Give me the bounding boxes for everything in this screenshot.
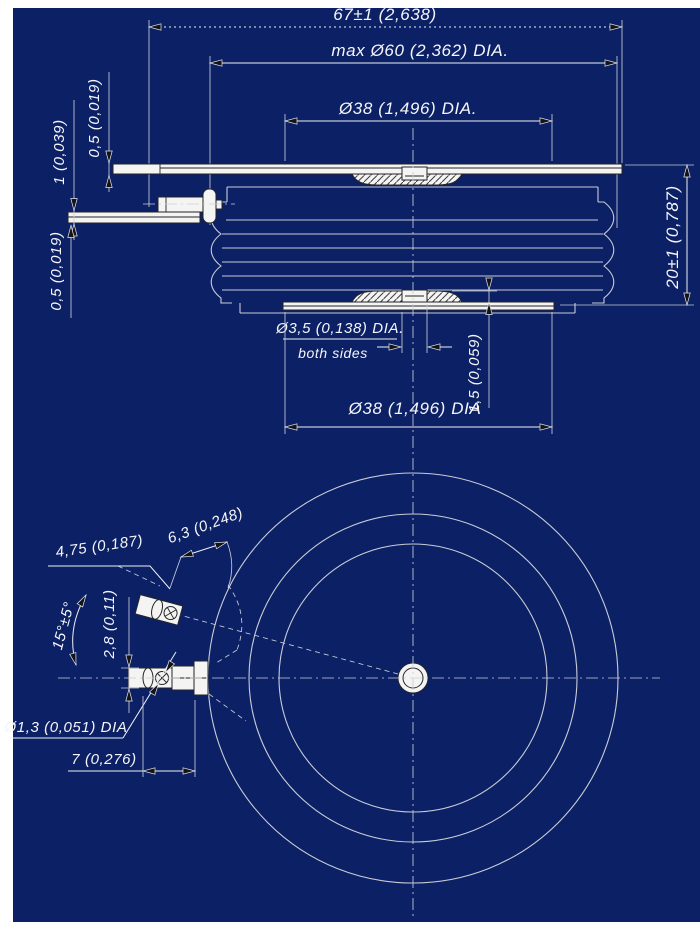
page-background (13, 8, 700, 922)
dim-terminal-offset-label: 7 (0,276) (71, 751, 136, 768)
bottom-pole-hub (352, 290, 462, 302)
top-lead-strip (113, 164, 622, 174)
anode-lead-strip (283, 302, 554, 310)
top-gate-notch (402, 167, 427, 180)
dim-gate-hole-label: Ø3,5 (0,138) DIA. (275, 320, 404, 337)
dim-gate-lead-thickness-label: 1 (0,039) (51, 119, 68, 184)
dim-max-diameter-label: max Ø60 (2,362) DIA. (331, 41, 508, 60)
gate-lead-strip (68, 212, 200, 223)
dim-strip-thickness-top-label: 0,5 (0,019) (86, 78, 103, 157)
dim-lead-width-label: 2,8 (0,11) (101, 589, 118, 659)
dim-pole-diameter-top-label: Ø38 (1,496) DIA. (338, 99, 477, 118)
cathode-lead-strip (113, 164, 622, 174)
gate-wire-bend (203, 189, 216, 223)
dim-overall-width-label: 67±1 (2,638) (333, 5, 436, 24)
drawing-canvas: 67±1 (2,638) max Ø60 (2,362) DIA. Ø38 (1… (0, 0, 700, 940)
dim-wire-hole-label: Ø1,3 (0,051) DIA (4, 719, 128, 736)
gate-connector-sleeve (158, 197, 208, 212)
technical-drawing-page: 67±1 (2,638) max Ø60 (2,362) DIA. Ø38 (1… (0, 0, 700, 940)
dim-pole-diameter-bottom-label: Ø38 (1,496) DIA (348, 399, 482, 418)
dim-gate-hole-note-label: both sides (298, 345, 368, 361)
dim-strip-thickness-bottom-label: 0,5 (0,019) (48, 231, 65, 310)
dim-height-label: 20±1 (0,787) (663, 185, 682, 289)
